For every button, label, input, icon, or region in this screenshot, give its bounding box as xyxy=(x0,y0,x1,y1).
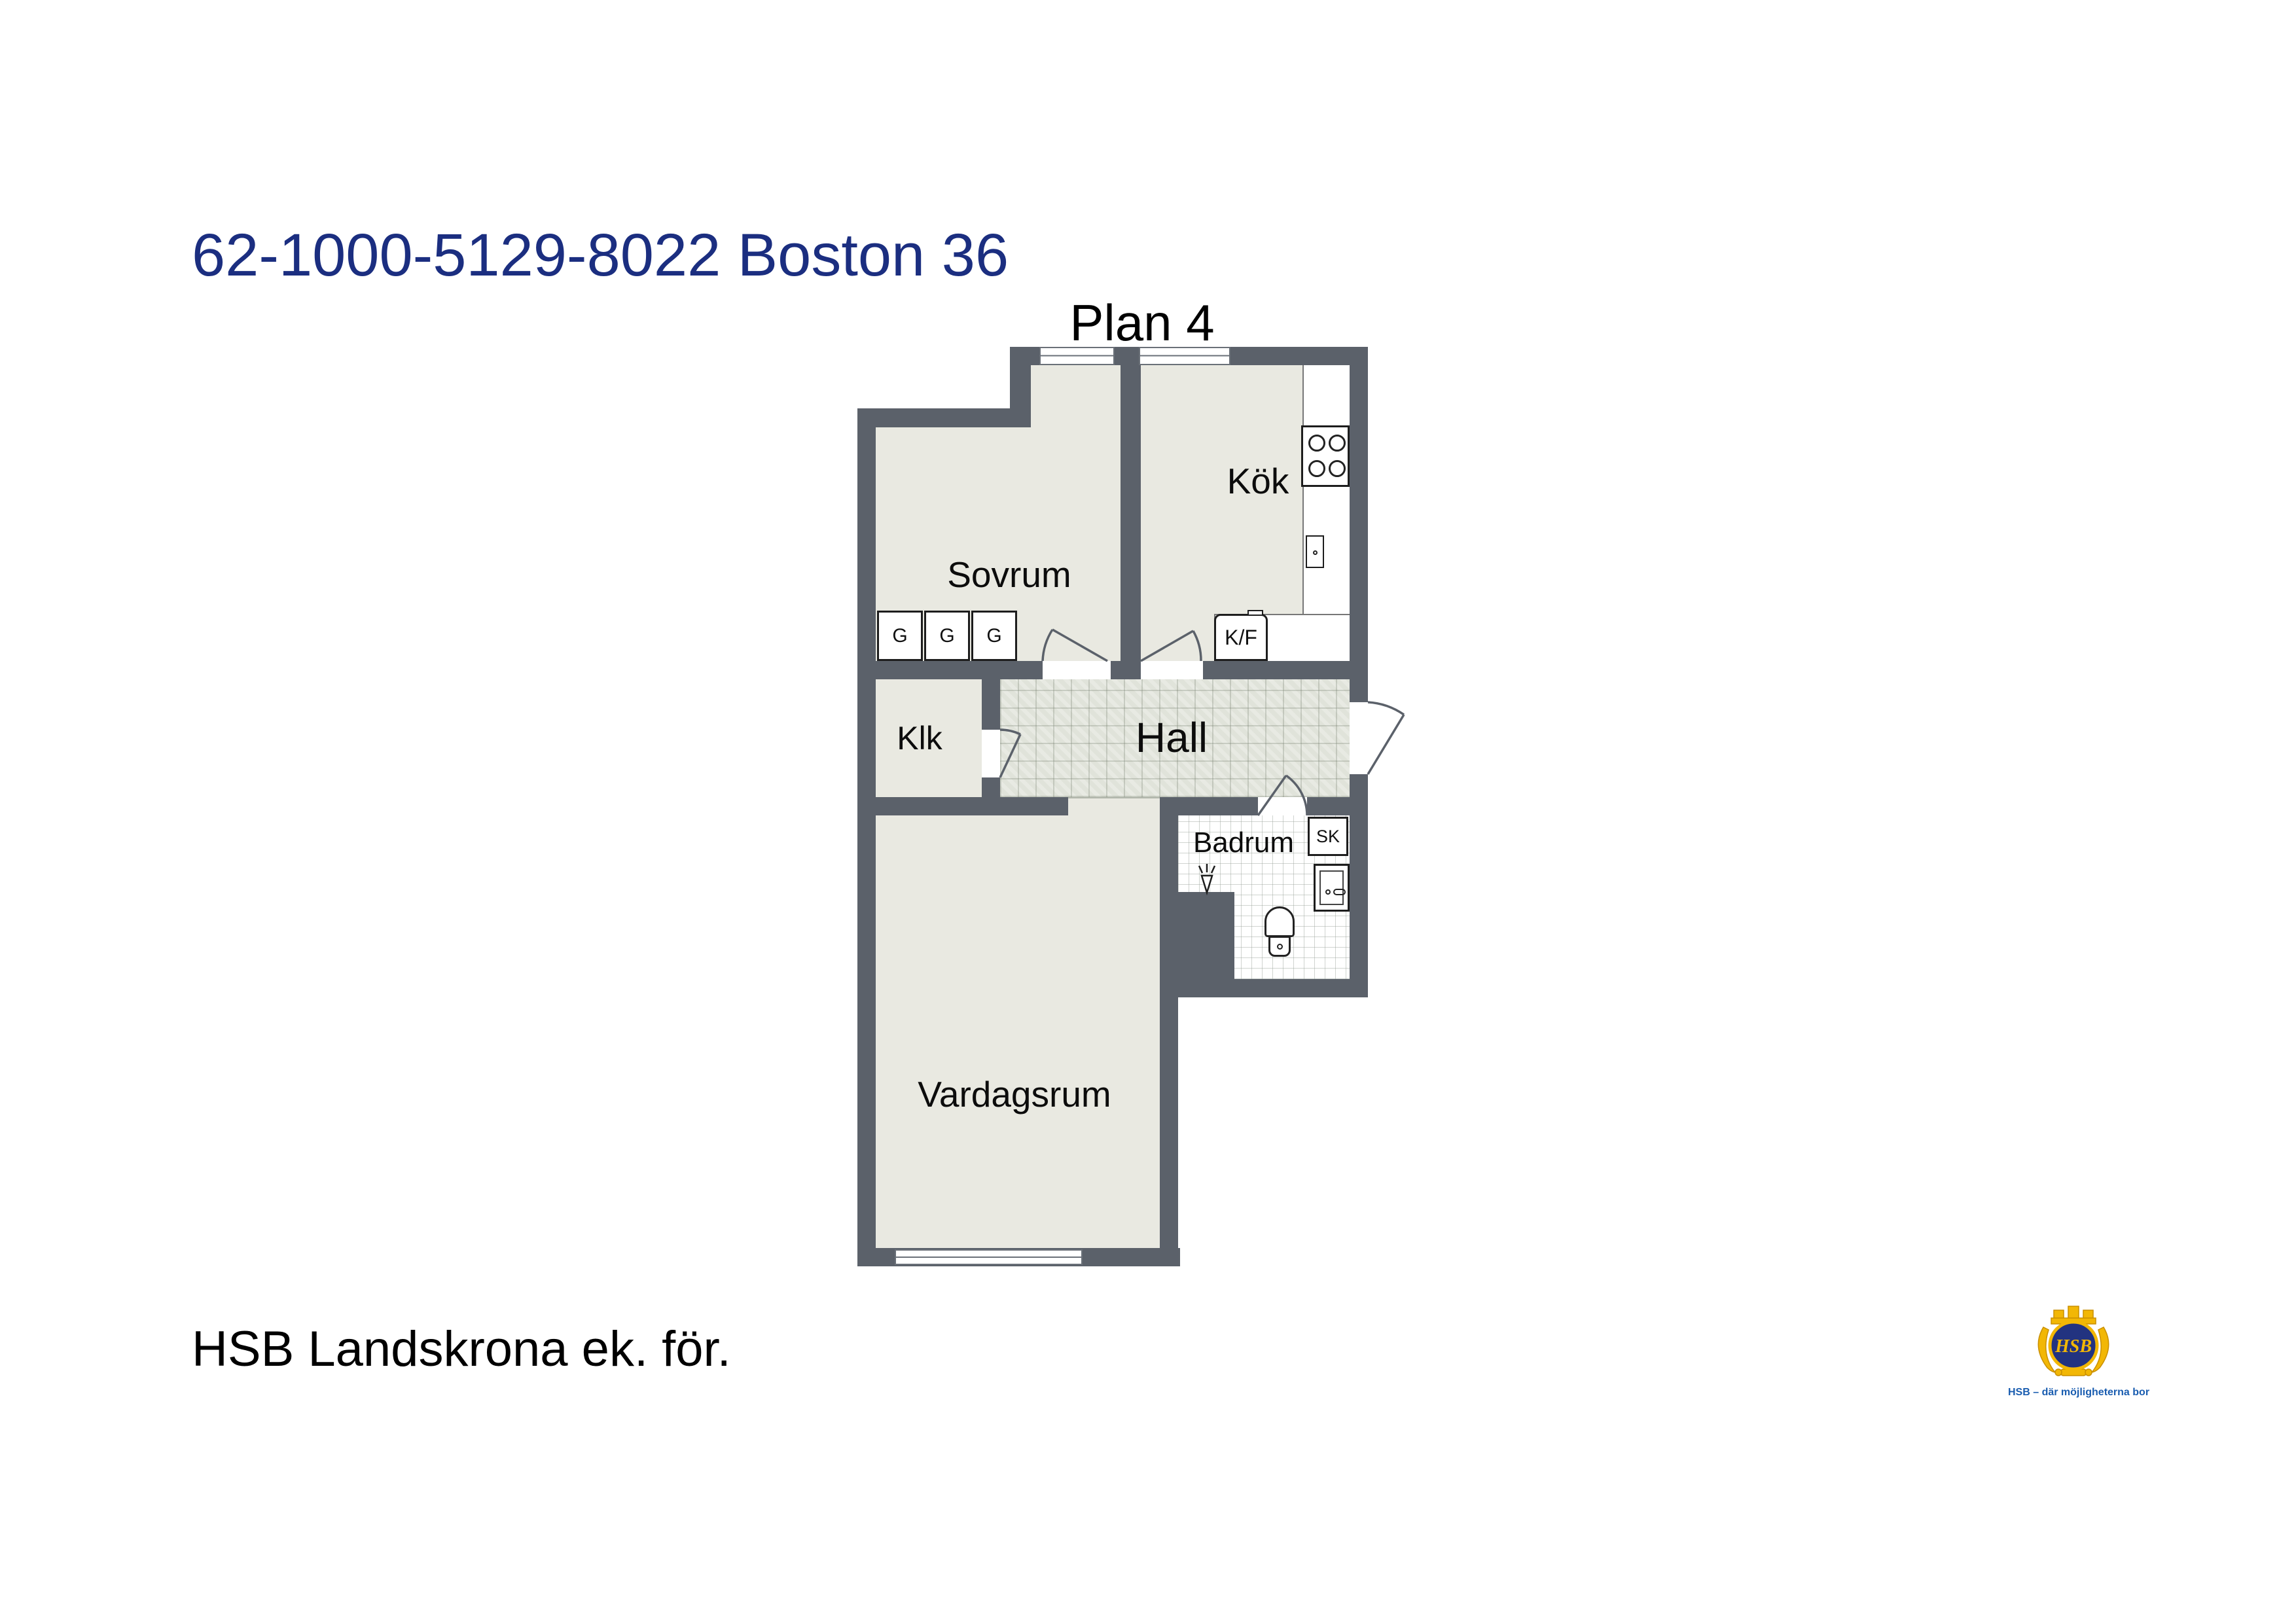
footer-association: HSB Landskrona ek. för. xyxy=(192,1321,731,1378)
window-living-room xyxy=(895,1249,1083,1265)
toilet xyxy=(1265,906,1295,937)
wall-segment xyxy=(1350,347,1368,702)
bathroom-cabinet: SK xyxy=(1308,817,1348,856)
wall-segment xyxy=(982,679,1000,730)
wall-segment xyxy=(876,797,1068,815)
wall-segment xyxy=(857,408,1031,427)
room-label-bedroom: Sovrum xyxy=(947,554,1071,596)
sink-drain-icon xyxy=(1313,550,1318,555)
wall-segment xyxy=(1111,661,1141,679)
room-label-kitchen: Kök xyxy=(1227,460,1289,502)
fridge-freezer-label: K/F xyxy=(1225,626,1257,650)
wall-segment xyxy=(1203,661,1350,679)
wardrobe-label: G xyxy=(892,625,907,647)
wall-segment xyxy=(982,777,1000,797)
wardrobe-box: G xyxy=(971,611,1017,661)
wall-segment xyxy=(1160,979,1368,997)
wardrobe-box: G xyxy=(924,611,970,661)
page-title: 62-1000-5129-8022 Boston 36 xyxy=(192,221,1009,290)
fridge-freezer: K/F xyxy=(1214,614,1268,661)
wall-segment xyxy=(857,408,876,1266)
wall-segment-room-divider xyxy=(1121,365,1141,661)
hsb-emblem-icon: HSB xyxy=(2021,1304,2126,1381)
room-label-living-room: Vardagsrum xyxy=(918,1073,1111,1115)
door-opening-bedroom xyxy=(1043,661,1111,679)
kitchen-sink xyxy=(1306,535,1324,568)
fridge-handle xyxy=(1247,610,1263,616)
wall-segment xyxy=(876,661,1043,679)
burner-icon xyxy=(1329,435,1346,452)
toilet-bowl xyxy=(1268,936,1291,957)
room-label-bathroom: Badrum xyxy=(1193,827,1294,859)
passage-living-room xyxy=(1068,797,1160,817)
wall-segment xyxy=(1160,797,1258,815)
wardrobe-label: G xyxy=(939,625,954,647)
wall-segment xyxy=(1307,797,1350,815)
wardrobe-label: G xyxy=(986,625,1001,647)
wall-segment xyxy=(1160,797,1178,1266)
bathroom-sink xyxy=(1314,864,1350,912)
bedroom-floor-upper xyxy=(1031,365,1122,427)
hsb-tagline: HSB – där möjligheterna bor xyxy=(2008,1387,2126,1399)
room-label-closet: Klk xyxy=(897,719,942,757)
page: 62-1000-5129-8022 Boston 36 Plan 4 xyxy=(0,0,2296,1623)
hsb-monogram: HSB xyxy=(2054,1336,2092,1357)
door-opening-closet xyxy=(982,730,1000,777)
floor-plan: G G G K/F SK xyxy=(854,347,1430,1266)
wall-segment xyxy=(1350,774,1368,997)
burner-icon xyxy=(1308,435,1325,452)
stove xyxy=(1301,425,1350,487)
room-label-hall: Hall xyxy=(1136,713,1208,762)
door-opening-entrance xyxy=(1350,702,1368,774)
plan-level-label: Plan 4 xyxy=(854,293,1430,353)
toilet-flush-icon xyxy=(1277,944,1283,950)
door-leaf-entrance xyxy=(1368,715,1404,774)
window-kitchen xyxy=(1139,347,1230,365)
living-room-floor xyxy=(876,815,1160,1248)
door-arc-entrance xyxy=(1368,702,1404,715)
sink-tap-icon xyxy=(1333,889,1346,895)
window-bedroom xyxy=(1039,347,1115,365)
burner-icon xyxy=(1329,460,1346,477)
hsb-logo: HSB HSB – där möjligheterna bor xyxy=(2015,1304,2132,1399)
bathroom-cabinet-label: SK xyxy=(1316,827,1340,847)
burner-icon xyxy=(1308,460,1325,477)
sink-basin xyxy=(1319,870,1344,905)
door-opening-bathroom xyxy=(1258,797,1307,815)
sink-drain-icon xyxy=(1325,889,1331,895)
kitchen-counter xyxy=(1302,365,1350,614)
door-opening-kitchen xyxy=(1141,661,1203,679)
wardrobe-box: G xyxy=(877,611,923,661)
